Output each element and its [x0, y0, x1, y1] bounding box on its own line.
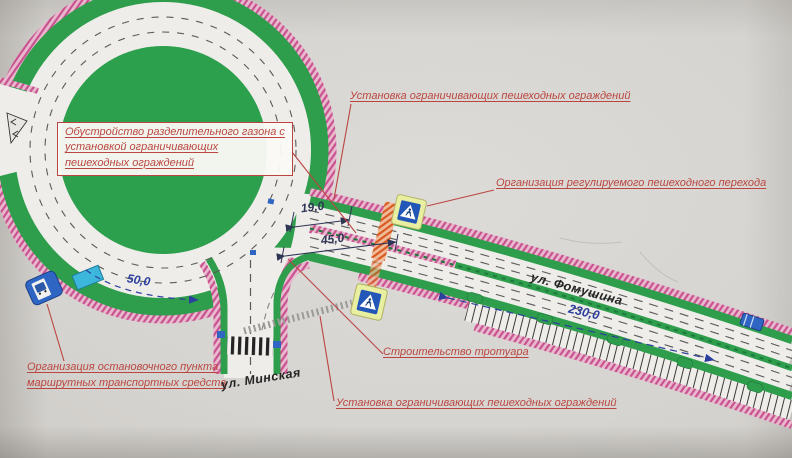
leader-fence-bottom: [320, 316, 334, 401]
plan-photo: 19,0 45,0 50,0 230,0 Установка ограничив…: [0, 0, 792, 458]
junction-corner-lawns: [277, 256, 311, 374]
annotation-text: Установка ограничивающих пешеходных огра…: [350, 89, 630, 105]
leader-bus-stop: [47, 304, 64, 361]
annotation-median-box: Обустройство разделительного газона с ус…: [57, 122, 293, 176]
annotation-text: Организация остановочного пункта: [27, 360, 226, 376]
annotation-text: Обустройство разделительного газона с: [65, 125, 285, 140]
pedestrian-crossing-sign-south: [350, 283, 388, 321]
annotation-text: маршрутных транспортных средств: [27, 376, 226, 392]
annotation-bus-stop: Организация остановочного пункта маршрут…: [27, 360, 226, 392]
crossing-sign-post-left: [217, 331, 225, 338]
annotation-fence-top: Установка ограничивающих пешеходных огра…: [350, 89, 630, 105]
annotation-crossing: Организация регулируемого пешеходного пе…: [496, 176, 766, 192]
zebra-crossing: [227, 336, 274, 356]
leader-fence-top: [334, 104, 351, 199]
utility-marker: [250, 250, 256, 255]
annotation-text: Строительство тротуара: [383, 345, 529, 361]
dim-45-label: 45,0: [319, 231, 345, 248]
annotation-text: пешеходных ограждений: [65, 156, 285, 171]
annotation-text: Организация регулируемого пешеходного пе…: [496, 176, 766, 192]
annotation-text: установкой ограничивающих: [65, 140, 285, 155]
crossing-sign-post-right: [273, 341, 281, 348]
zebra-stripes: [227, 336, 274, 356]
dim-19-label: 19,0: [300, 199, 325, 216]
annotation-fence-bottom: Установка ограничивающих пешеходных огра…: [336, 396, 616, 412]
annotation-sidewalk: Строительство тротуара: [383, 345, 529, 361]
leader-crossing: [427, 190, 494, 206]
pedestrian-crossing-sign-north: [391, 194, 427, 230]
annotation-text: Установка ограничивающих пешеходных огра…: [336, 396, 616, 412]
